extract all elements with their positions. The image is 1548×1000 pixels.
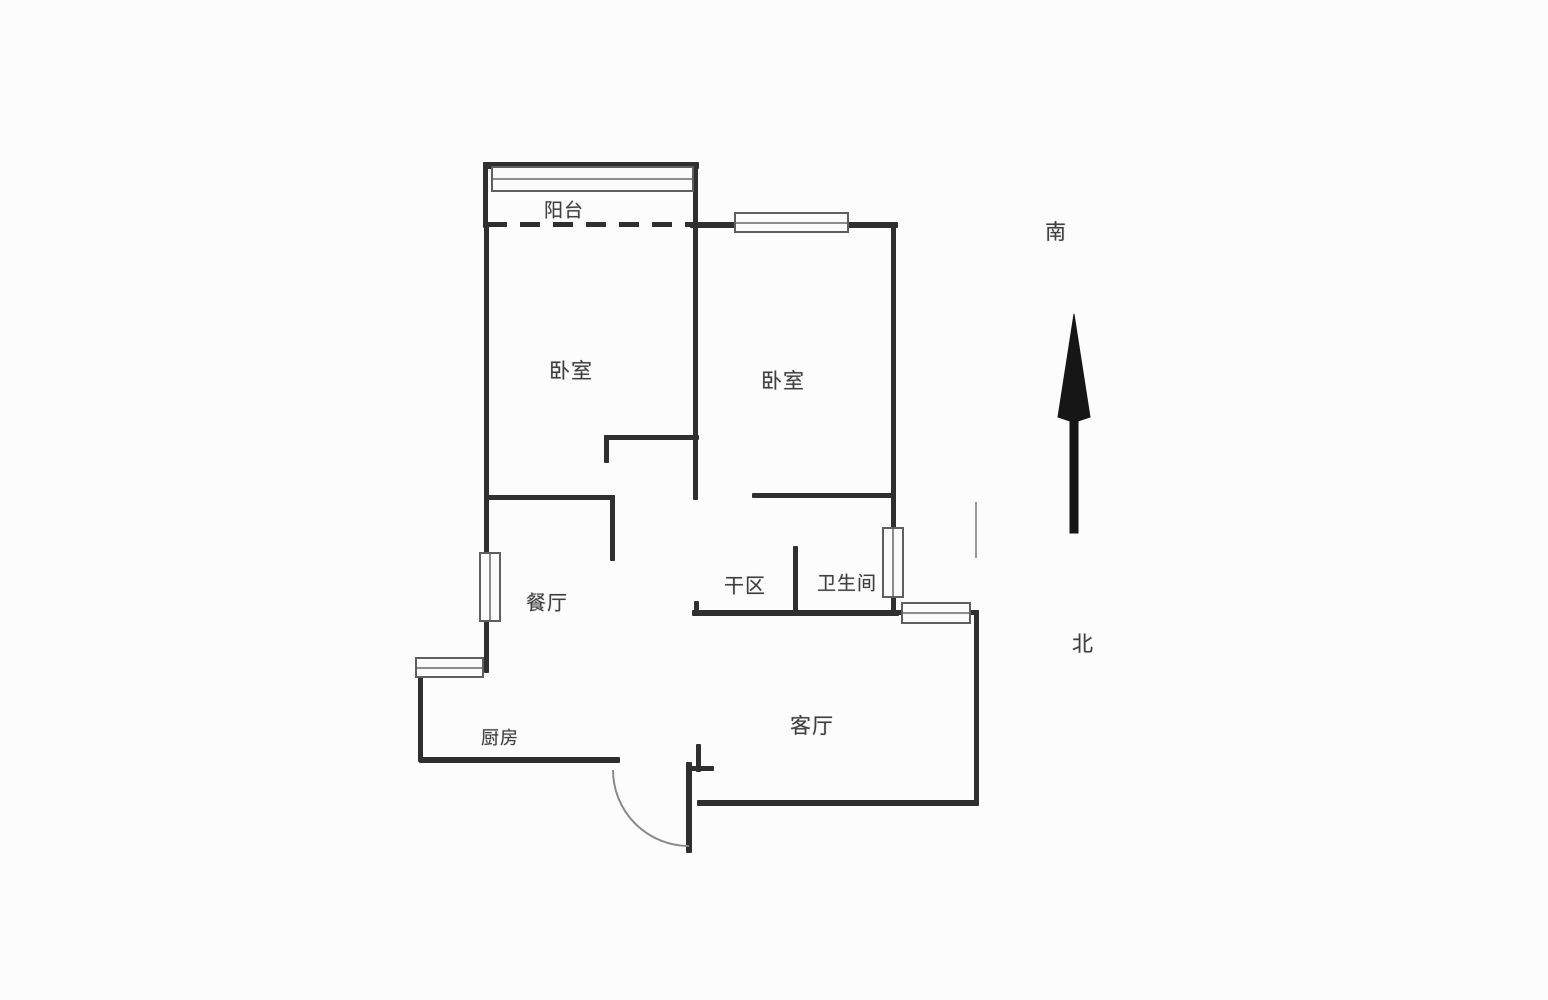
label-bathroom: 卫生间 [817,569,877,596]
label-dining-room: 餐厅 [526,587,568,616]
entry-door-swing-arc [613,770,689,846]
label-balcony: 阳台 [544,196,584,223]
label-compass-south: 南 [1045,216,1067,246]
vector-layer [0,0,1548,1000]
floor-plan: 阳台 卧室 卧室 餐厅 干区 卫生间 厨房 客厅 南 北 [0,0,1548,1000]
label-bedroom-right: 卧室 [761,365,805,395]
label-compass-north: 北 [1072,628,1094,658]
label-dry-area: 干区 [724,570,766,599]
compass-arrow-icon [1058,314,1090,533]
label-bedroom-left: 卧室 [549,355,593,385]
label-living-room: 客厅 [790,710,834,740]
label-kitchen: 厨房 [481,724,519,750]
